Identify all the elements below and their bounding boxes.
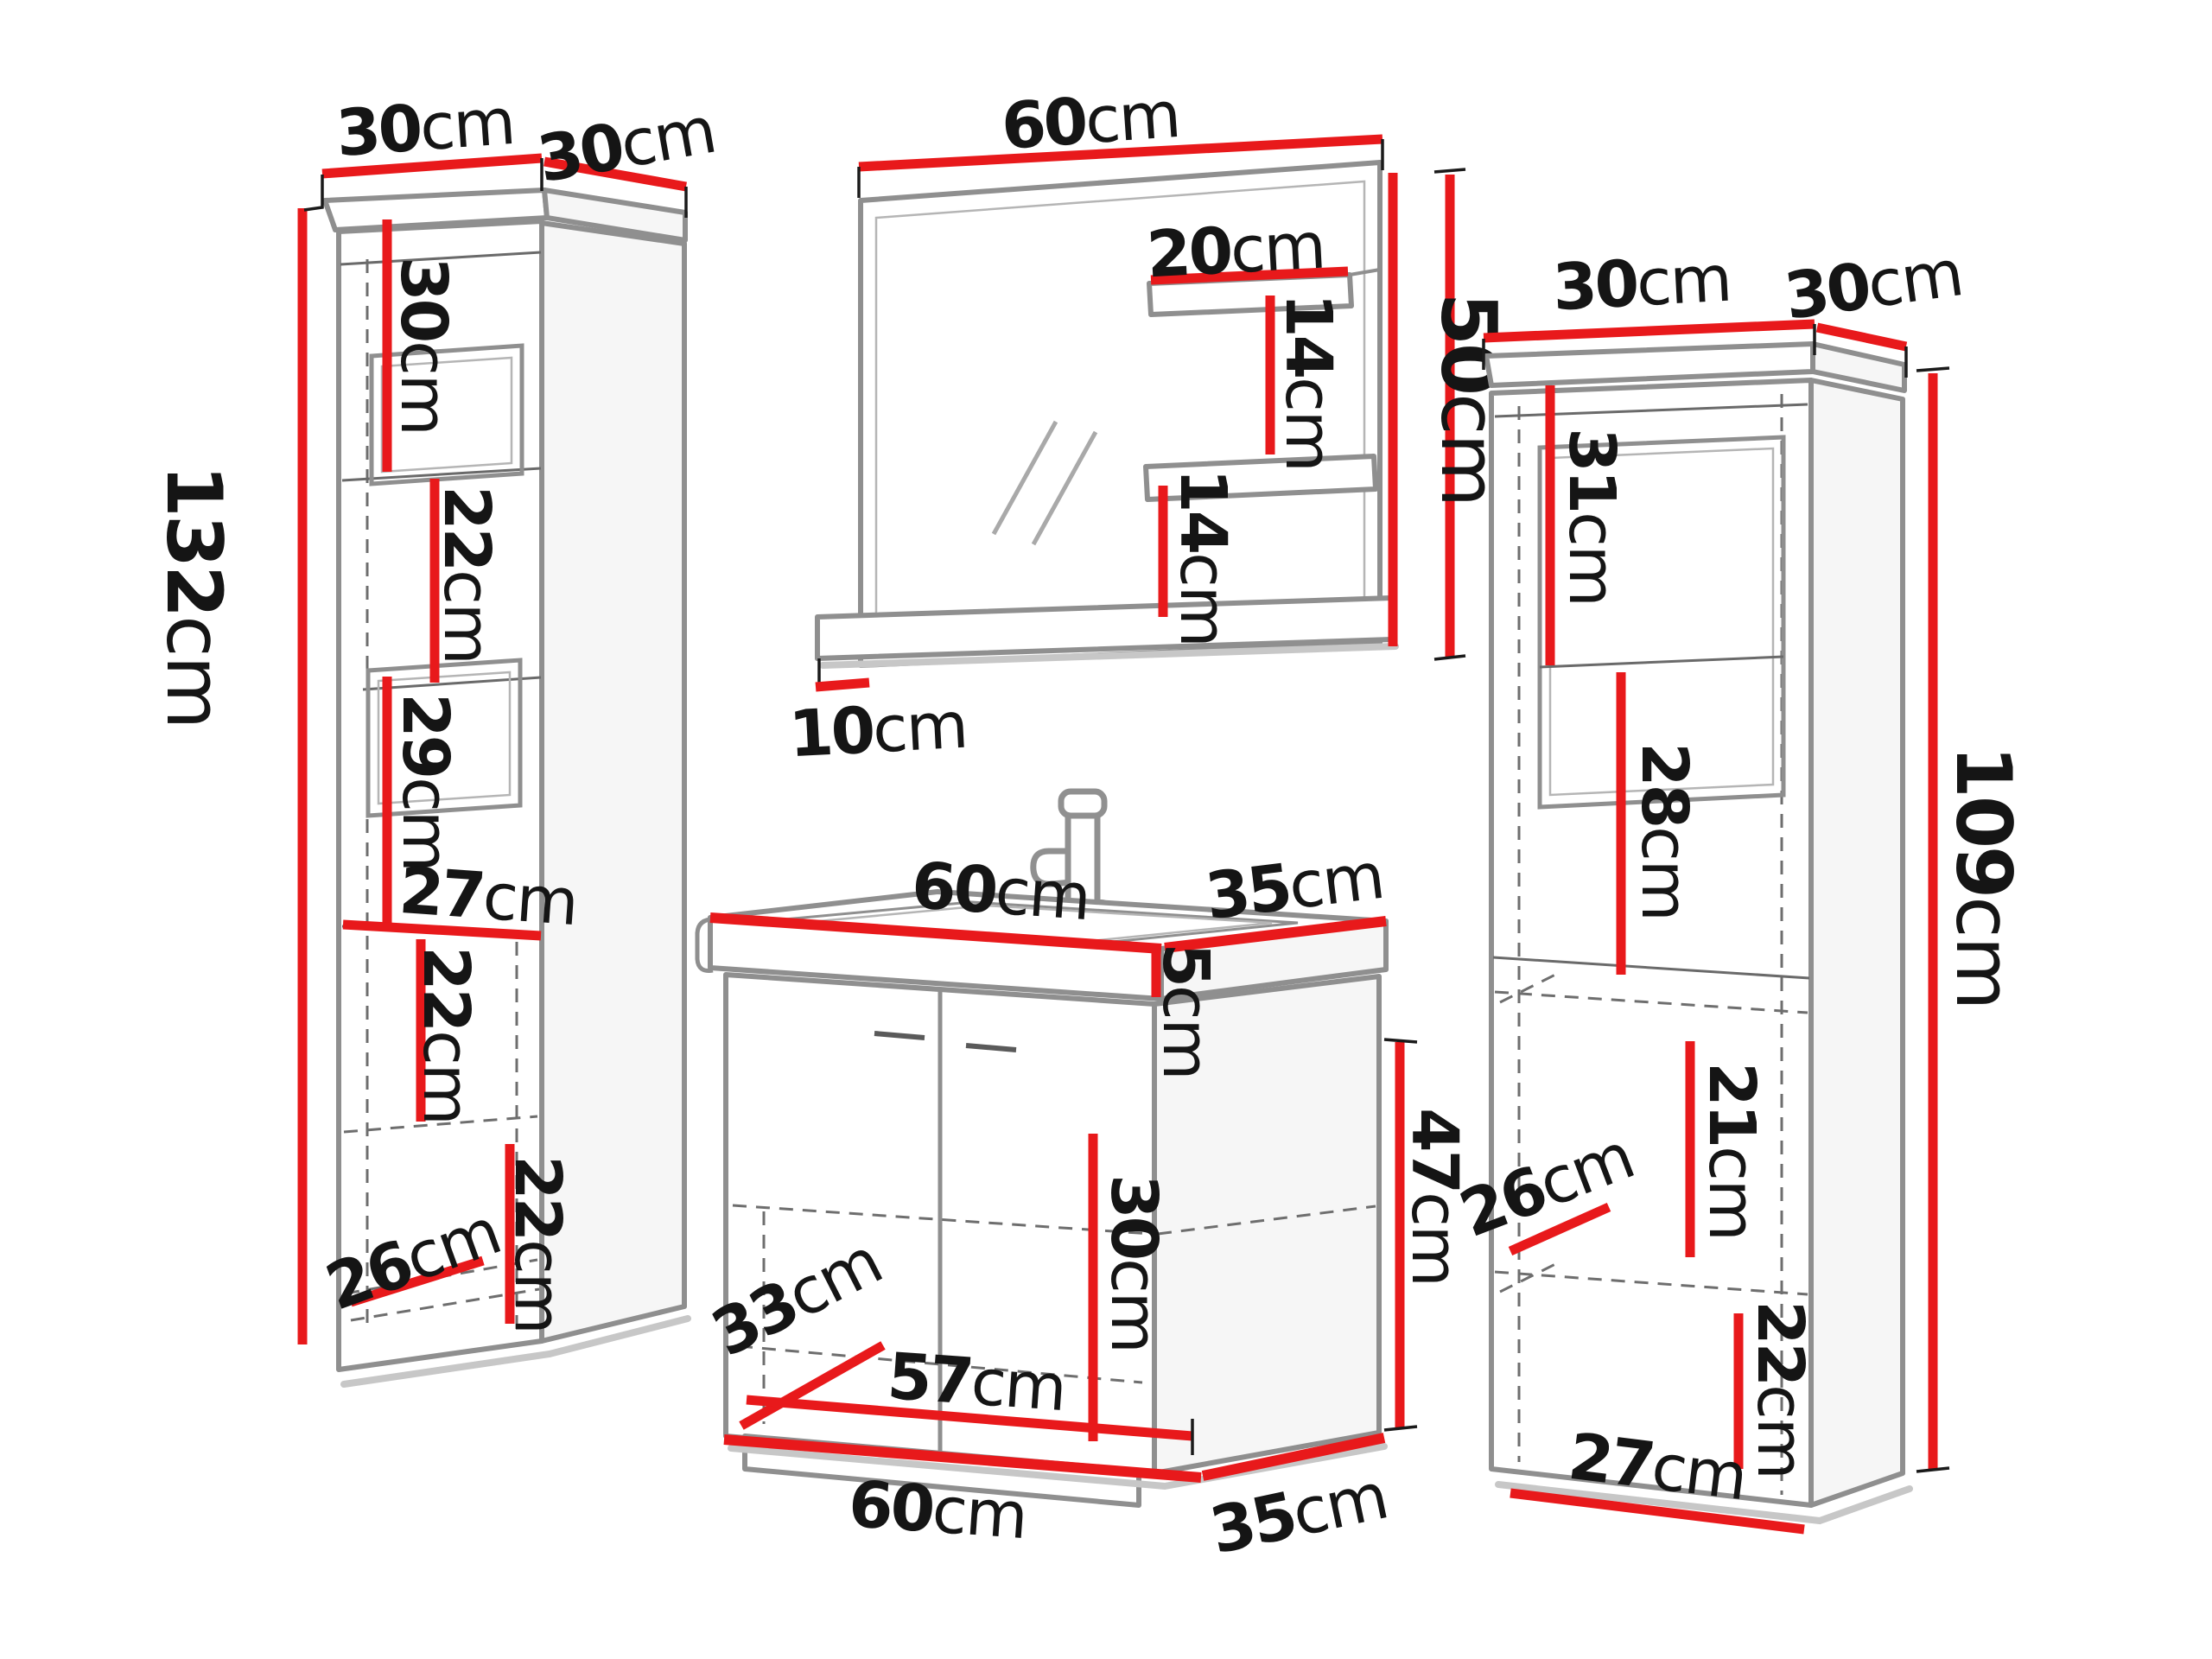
left-cabinet-label-inner-width: 27cm [397,854,579,940]
right-cabinet-dim-line-top-depth [1817,327,1906,346]
right-cabinet-side-panel [1811,380,1903,1505]
right-cabinet-label-section-2: 28cm [1627,742,1701,920]
mirror-label-width: 60cm [999,78,1181,164]
mirror: 60cm 20cm 14cm 14cm 50cm 10cm [787,78,1513,772]
left-cabinet-label-section-3: 29cm [388,693,462,871]
left-cabinet-label-section-2: 22cm [429,486,504,664]
right-cabinet-label-section-3: 21cm [1694,1062,1769,1240]
right-cabinet-dim-line-top-width [1484,324,1815,338]
right-cabinet-label-section-1: 31cm [1554,428,1629,606]
left-cabinet-label-height: 132cm [150,465,239,728]
left-cabinet-tick-left [304,175,322,210]
vanity-label-inner-height: 30cm [1096,1174,1171,1352]
left-cabinet-label-section-5: 22cm [500,1155,575,1333]
mirror-label-ledge-depth: 10cm [787,689,969,772]
vanity-label-inner-width: 57cm [885,1339,1067,1426]
mirror-label-gap-1: 14cm [1271,293,1345,471]
left-cabinet-label-section-1: 30cm [386,257,461,435]
left-cabinet-label-section-4: 22cm [409,946,483,1124]
right-cabinet: 30cm 30cm 31cm 28cm 109cm 21cm 26cm 22cm… [1451,236,2029,1529]
furniture-dimension-drawing: 30cm 30cm 132cm 30cm 22cm 29cm 27cm 22cm… [0,0,2212,1659]
mirror-label-gap-2: 14cm [1166,468,1240,646]
left-cabinet-label-top-depth: 30cm [532,93,721,197]
vanity-label-top-width: 60cm [909,849,1091,935]
left-cabinet-label-top-width: 30cm [334,85,516,171]
right-cabinet-crown-front [1486,344,1813,385]
vanity-label-basin-height: 5cm [1148,943,1223,1078]
right-cabinet-label-section-4: 22cm [1743,1300,1817,1478]
left-cabinet: 30cm 30cm 132cm 30cm 22cm 29cm 27cm 22cm… [150,85,721,1384]
vanity: 60cm 35cm 5cm 30cm 33cm 57cm 60cm 35cm 4… [697,791,1471,1568]
right-cabinet-label-top-depth: 30cm [1780,236,1967,334]
mirror-label-shelf-width: 20cm [1145,209,1326,293]
right-cabinet-label-height: 109cm [1940,746,2029,1009]
diagram-canvas: 30cm 30cm 132cm 30cm 22cm 29cm 27cm 22cm… [0,0,2212,1659]
vanity-label-bottom-width: 60cm [846,1467,1028,1554]
right-cabinet-label-top-width: 30cm [1551,242,1732,326]
mirror-dim-line-ledge-depth [816,683,869,687]
faucet-cap [1061,791,1104,816]
